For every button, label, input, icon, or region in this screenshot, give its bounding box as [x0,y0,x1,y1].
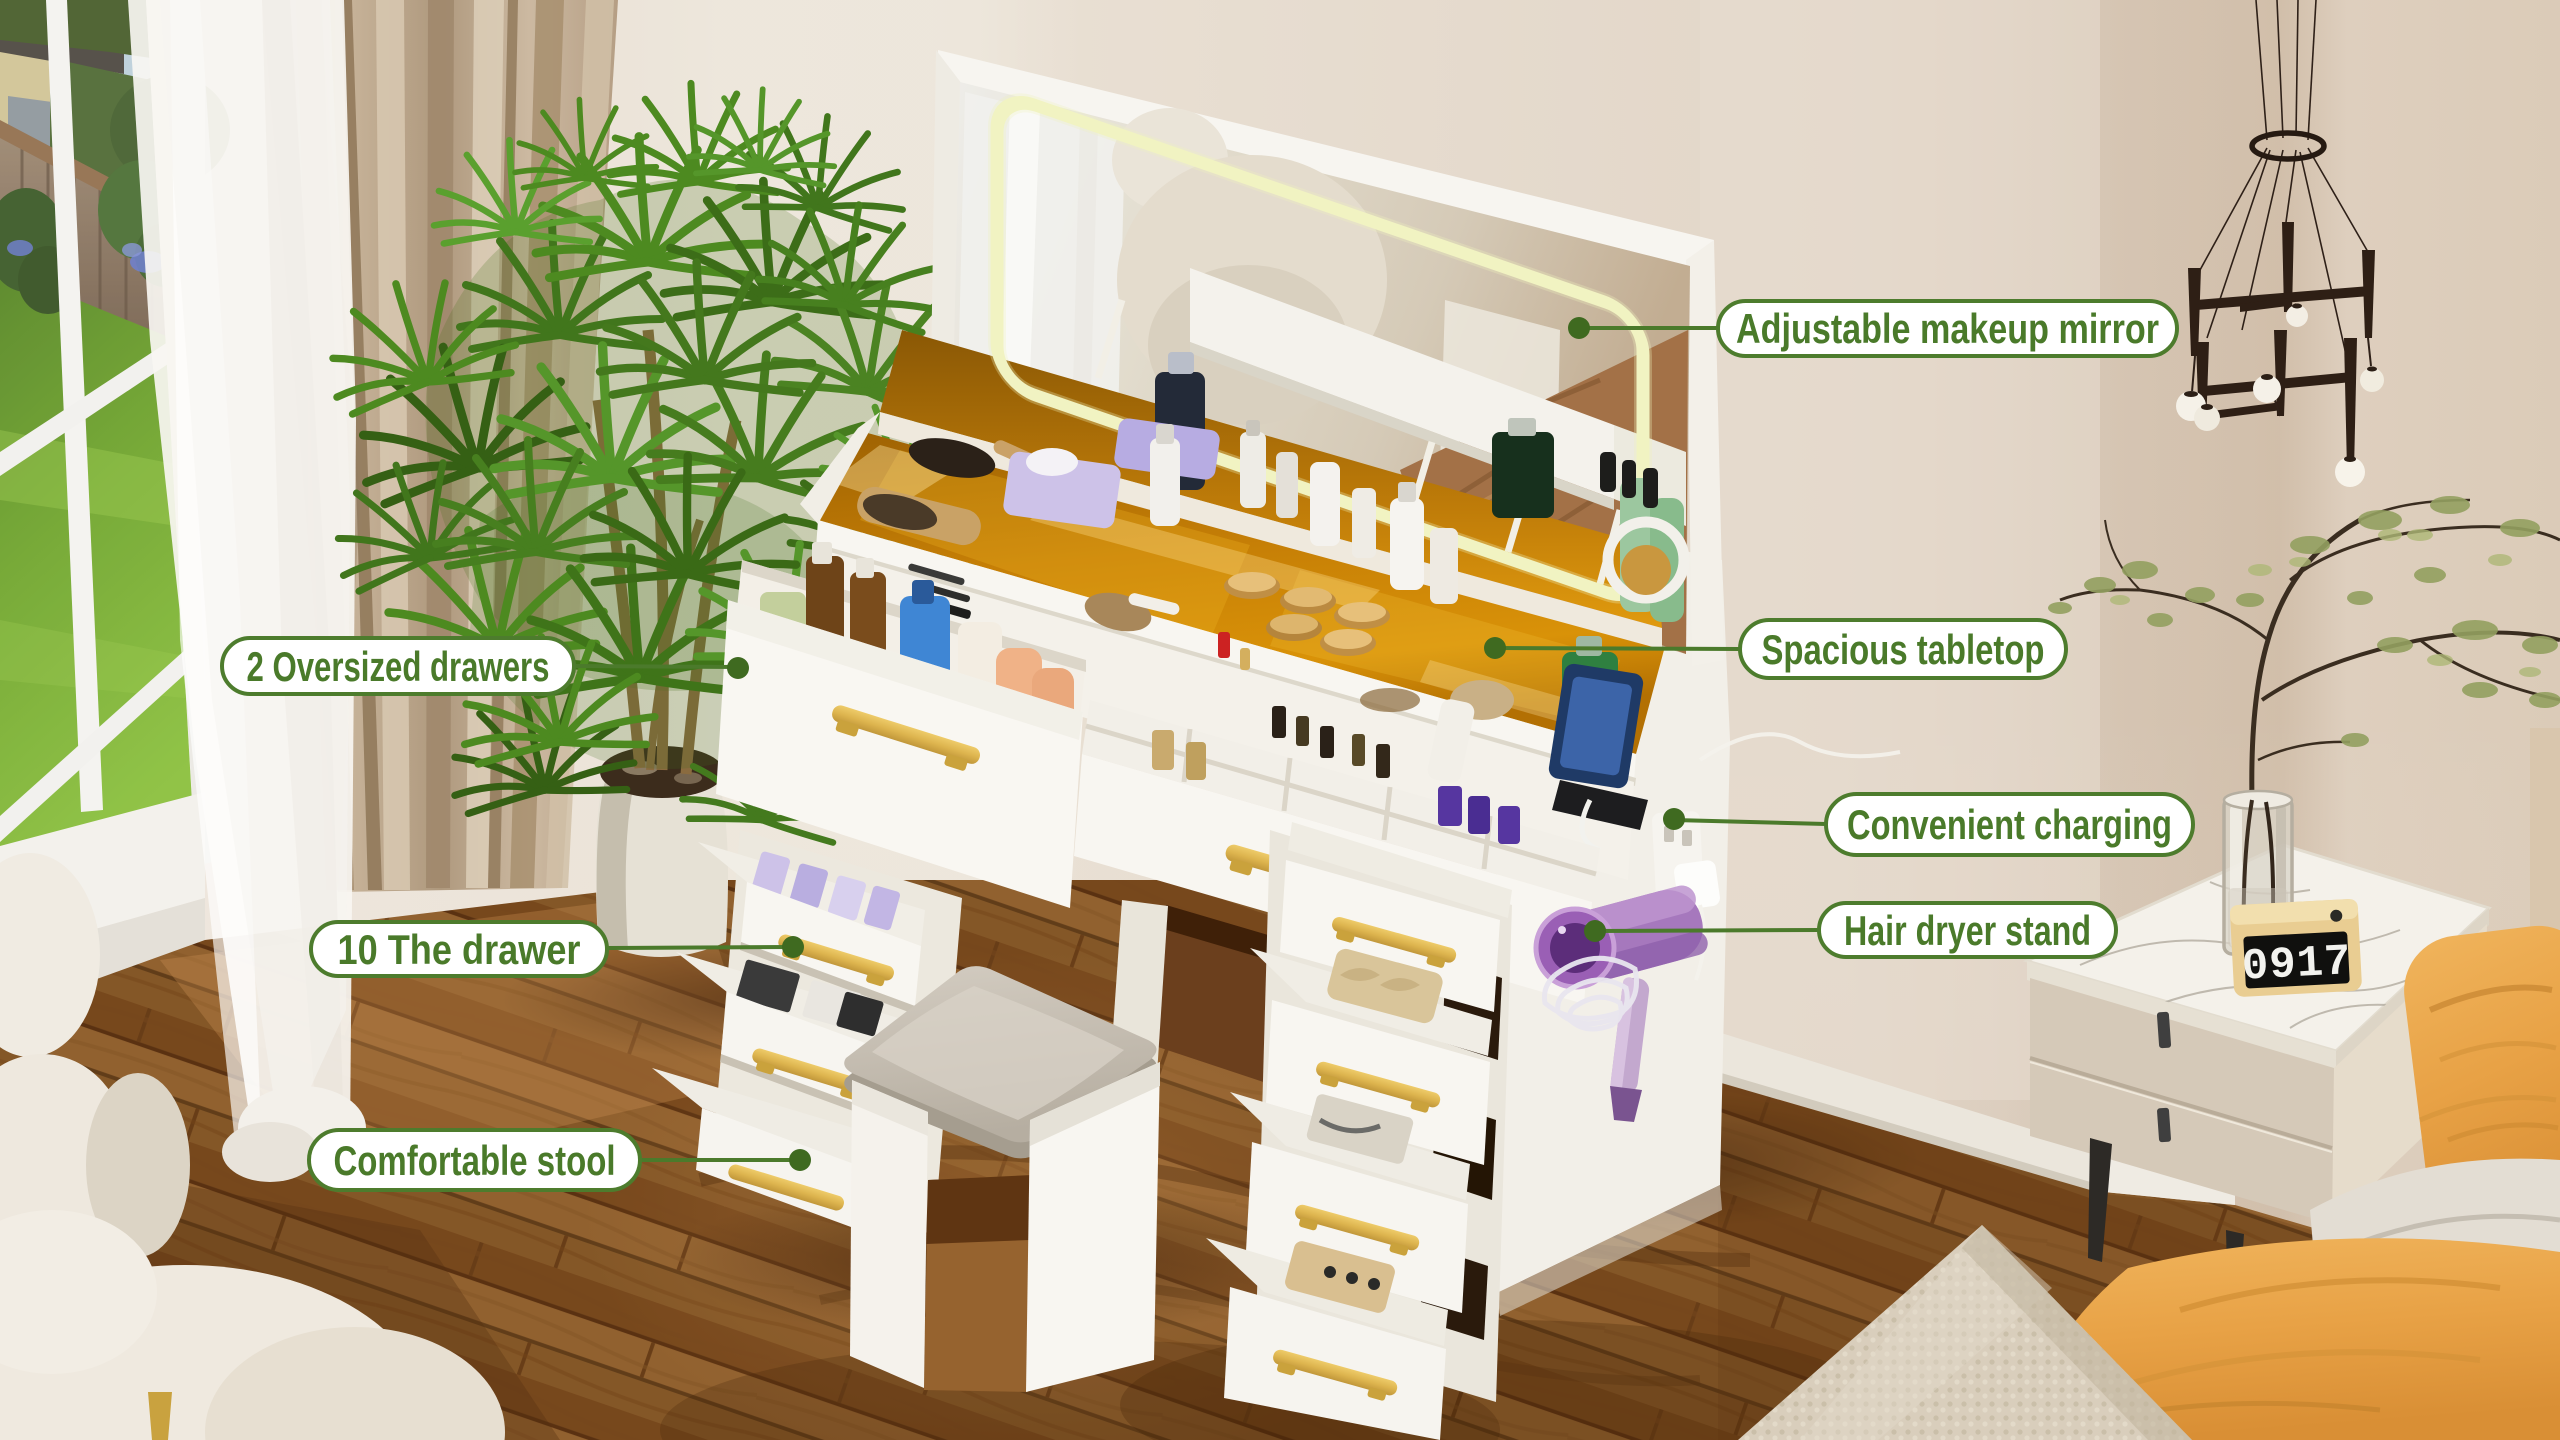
svg-text:10 The drawer: 10 The drawer [338,926,581,973]
svg-text:Adjustable makeup mirror: Adjustable makeup mirror [1736,305,2159,352]
svg-text:Spacious tabletop: Spacious tabletop [1762,626,2045,673]
svg-text:Convenient charging: Convenient charging [1847,801,2172,848]
svg-text:0917: 0917 [2241,937,2353,993]
svg-text:2 Oversized drawers: 2 Oversized drawers [247,643,550,690]
svg-text:Comfortable stool: Comfortable stool [334,1137,616,1184]
svg-text:Hair dryer stand: Hair dryer stand [1844,907,2091,954]
